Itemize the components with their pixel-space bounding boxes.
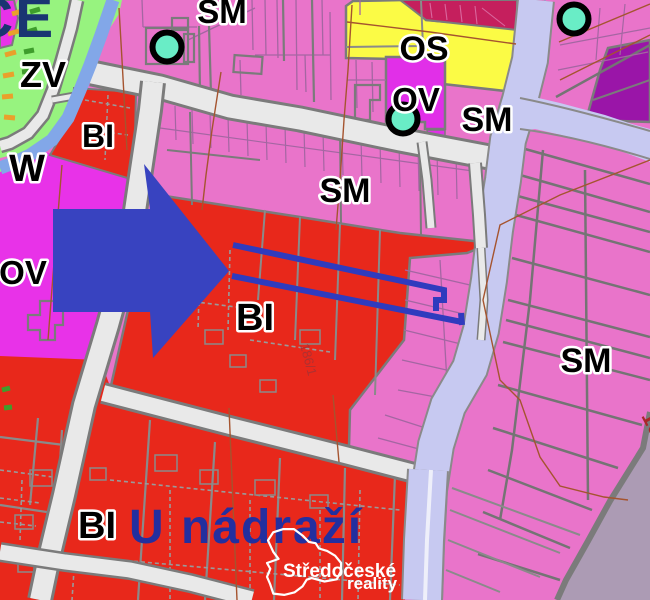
svg-text:SM: SM	[462, 101, 513, 139]
svg-text:SM: SM	[320, 172, 371, 210]
svg-text:OV: OV	[392, 81, 440, 118]
svg-text:CE: CE	[0, 0, 55, 50]
svg-text:BI: BI	[78, 505, 116, 547]
svg-text:W: W	[9, 148, 45, 190]
svg-text:SM: SM	[197, 0, 247, 30]
svg-text:ZV: ZV	[20, 54, 66, 95]
svg-text:BI: BI	[236, 297, 274, 339]
svg-text:OS: OS	[399, 30, 448, 68]
svg-text:BI: BI	[82, 118, 114, 154]
svg-text:U nádraží: U nádraží	[129, 501, 363, 554]
svg-text:SM: SM	[561, 342, 612, 380]
svg-text:reality: reality	[347, 574, 398, 593]
svg-text:OV: OV	[0, 254, 47, 291]
